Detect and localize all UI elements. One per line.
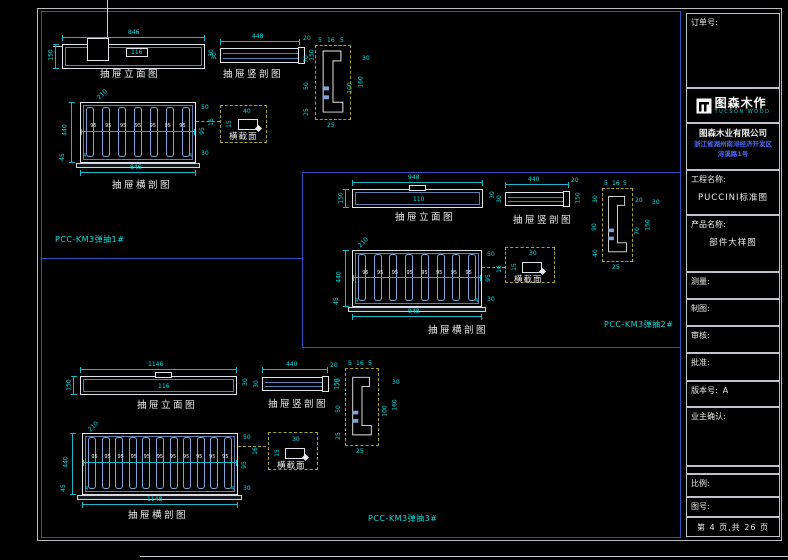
cell-dim-text: 95 (105, 124, 111, 129)
cell-dim-text: 95 (157, 455, 163, 460)
dim-vsec-width: 440 (286, 362, 297, 368)
dim-hsec-r3: 30 (487, 297, 495, 303)
dim-prof-side: 30 (652, 200, 660, 206)
cell-dim-text: 95 (131, 455, 137, 460)
mid-dim-line (81, 131, 195, 132)
detail-leader-dash (482, 267, 505, 268)
audit-label: 审核: (687, 327, 779, 341)
dim-wall: 4 (231, 487, 234, 492)
dim-line-width (352, 182, 483, 183)
dim-hsec-r3: 30 (201, 151, 209, 157)
elevation-label: 抽屉立面图 (137, 401, 197, 411)
dim-hsec-r1: 50 (201, 105, 209, 111)
divider-slot (197, 437, 205, 489)
dim-vsec-width: 440 (528, 177, 539, 183)
cell-dim-text: 95 (150, 124, 156, 129)
dim-line-bottom (82, 504, 238, 505)
profile-section-shape (349, 372, 375, 442)
figure-number-label: 图号: (687, 498, 779, 512)
dim-prof-bottom: 25 (327, 123, 335, 129)
cell-dims-row: 9595959595959595 (358, 271, 476, 276)
dim-width: 846 (128, 30, 139, 36)
dim-depth: 440 (61, 459, 72, 465)
company-cell: 图森木业有限公司 浙江省湖州南浔经济开发区 浔溪路1号 (686, 123, 780, 170)
logo-subtitle: TUCSON WOOD (715, 110, 771, 115)
product-cell: 产品名称: 部件大样图 (686, 215, 780, 272)
vsection-line (508, 197, 566, 198)
dim-prof-r3: 160 (390, 402, 401, 408)
divider-slots (86, 107, 190, 157)
dim-prof-l2: 50 (303, 83, 311, 89)
dim-inner-width: 116 (158, 384, 169, 390)
vsection-line (223, 53, 302, 54)
vsection-label: 抽屉竖剖图 (268, 400, 328, 410)
divider-slot (134, 107, 142, 157)
cell-dim-text: 95 (144, 455, 150, 460)
detail-leader-dash (238, 446, 266, 447)
dim-cross-h: 15 (226, 121, 234, 127)
dim-prof-t2: 16 (612, 181, 620, 187)
dim-line-vsec (262, 369, 328, 370)
dim-inner-width: 110 (413, 197, 424, 203)
dim-cross-h: 15 (511, 264, 519, 270)
version-cell: 版本号: A (686, 381, 780, 407)
cell-dim-text: 95 (120, 124, 126, 129)
cell-dim-text: 95 (164, 124, 170, 129)
vsection-endcap (322, 376, 329, 392)
dim-prof-t2: 16 (356, 361, 364, 367)
dim-width: 1146 (148, 362, 163, 368)
cell-dim-text: 95 (91, 455, 97, 460)
dim-line-bottom (80, 172, 196, 173)
hsection-label: 抽屉横剖图 (428, 326, 488, 336)
elevation-label: 抽屉立面图 (100, 70, 160, 80)
dim-prof-l1: 70 (303, 56, 311, 62)
dim-vsec-width: 448 (252, 34, 263, 40)
divider-slot (129, 437, 137, 489)
divider-slot (118, 107, 126, 157)
divider-slot (183, 437, 191, 489)
elevation-label: 抽屉立面图 (395, 213, 455, 223)
divider-slot (142, 437, 150, 489)
dim-width: 948 (408, 175, 419, 181)
group-code-label: PCC-KM3弹抽2# (604, 321, 673, 329)
vsection-bar (262, 377, 328, 391)
dim-hsec-r2: 95 (199, 128, 207, 134)
cell-dim-text: 95 (170, 455, 176, 460)
dim-prof-t2: 16 (327, 38, 335, 44)
dim-hsec-width: 846 (130, 165, 141, 171)
version-value: A (723, 386, 728, 395)
dim-line-bottom (352, 316, 482, 317)
project-cell: 工程名称: PUCCINI标准图 (686, 170, 780, 215)
owner-confirm-cell: 业主确认: (686, 407, 780, 466)
cell-dim-text: 95 (196, 455, 202, 460)
cell-dim-text: 95 (436, 271, 442, 276)
profile-section-shape (605, 192, 630, 258)
cell-dims-row: 9595959595959595959595 (88, 455, 232, 460)
dim-wall: 4 (85, 487, 88, 492)
owner-confirm-label: 业主确认: (687, 408, 779, 422)
dim-wall: 4 (355, 299, 358, 304)
vsection-label: 抽屉竖剖图 (513, 216, 573, 226)
dim-cross-w: 30 (292, 437, 300, 443)
dim-diagonal: 210 (88, 424, 99, 430)
cell-dim-text: 95 (421, 271, 427, 276)
measure-label: 测量: (687, 273, 779, 287)
bottom-sheet-edge-line (140, 556, 788, 557)
dim-prof-l2: 50 (335, 406, 343, 412)
dim-vsec-left: 30 (253, 381, 261, 387)
version-label: 版本号: A (687, 382, 779, 396)
cell-dim-text: 95 (179, 124, 185, 129)
dim-prof-t1: 5 (348, 361, 352, 367)
cross-label: 横截面 (514, 276, 543, 285)
hsection-label: 抽屉横剖图 (128, 511, 188, 521)
dim-cross-h: 15 (274, 450, 282, 456)
divider-slot (166, 107, 174, 157)
measure-cell: 测量: (686, 272, 780, 299)
dim-vsec-capright: 150 (573, 195, 584, 201)
dim-prof-l3: 40 (592, 250, 600, 256)
dim-prof-bottom: 25 (612, 265, 620, 271)
cell-dim-text: 95 (465, 271, 471, 276)
push-latch-square (87, 38, 109, 61)
dim-cross-w: 40 (243, 109, 251, 115)
dim-prof-r2: 100 (380, 408, 391, 414)
divider-slot (182, 107, 190, 157)
cad-sheet: 116 846 150 30 抽屉立面图 448 20 150 30 抽屉竖剖图… (0, 0, 788, 560)
cell-dims-row: 95959595959595 (86, 124, 190, 129)
dim-height: 150 (336, 195, 347, 201)
vsection-line (508, 201, 566, 202)
handle-notch (409, 185, 426, 191)
dim-hsec-r2: 95 (241, 462, 249, 468)
scale-label: 比例: (687, 475, 779, 489)
divider-slot (102, 437, 110, 489)
dim-vsec-captop: 20 (303, 36, 311, 42)
project-label: 工程名称: (687, 171, 779, 185)
group-code-label: PCC-KM3弹抽1# (55, 236, 124, 244)
divider-slot (156, 437, 164, 489)
dim-prof-t3: 5 (623, 181, 627, 187)
figure-number-cell: 图号: (686, 497, 780, 517)
vsection-bar (505, 192, 569, 206)
handle-notch (155, 372, 172, 378)
dim-side: 30 (242, 379, 250, 385)
logo-cell: 图森木作 TUCSON WOOD (686, 88, 780, 123)
divider-slot (88, 437, 96, 489)
dim-prof-r3: 160 (356, 79, 367, 85)
company-name: 图森木业有限公司 (687, 124, 779, 139)
dim-line-vsec (220, 41, 300, 42)
product-value: 部件大样图 (687, 230, 779, 248)
hsection-label: 抽屉横剖图 (112, 181, 172, 191)
product-label: 产品名称: (687, 216, 779, 230)
cell-dim-text: 95 (135, 124, 141, 129)
dim-vsec-captop: 20 (571, 178, 579, 184)
vsection-line (265, 386, 325, 387)
detail-leader-dash (196, 121, 220, 122)
dim-lead: 16 (208, 119, 216, 125)
dim-depth: 440 (334, 274, 345, 280)
approve-label: 批准: (687, 354, 779, 368)
dim-prof-t3: 5 (368, 361, 372, 367)
dim-bottom-left: 45 (59, 154, 67, 160)
cross-label: 横截面 (229, 133, 258, 142)
dim-wall: 4 (189, 154, 192, 159)
dim-inner-width: 116 (131, 50, 142, 56)
cell-dim-text: 95 (377, 271, 383, 276)
tucson-wood-logo-icon (696, 98, 712, 114)
divider-slot (102, 107, 110, 157)
page-number-cell: 第 4 页,共 26 页 (686, 517, 780, 537)
cell-dim-text: 95 (406, 271, 412, 276)
dim-prof-l1: 70 (335, 379, 343, 385)
divider-slot (115, 437, 123, 489)
vsection-bar (220, 48, 305, 63)
mid-dim-line (353, 277, 481, 278)
cell-dim-text: 95 (222, 455, 228, 460)
dim-hsec-r1: 50 (487, 252, 495, 258)
dim-line-vsec (505, 184, 569, 185)
dim-vsec-left: 30 (496, 196, 504, 202)
dim-prof-l3: 25 (303, 109, 311, 115)
divider-slot (224, 437, 232, 489)
cell-dim-text: 95 (104, 455, 110, 460)
dim-prof-r1: 30 (392, 380, 400, 386)
dim-bottom-left: 45 (60, 485, 68, 491)
vsection-line (265, 382, 325, 383)
dim-prof-t1: 5 (604, 181, 608, 187)
approve-cell: 批准: (686, 353, 780, 381)
company-address-line1: 浙江省湖州南浔经济开发区 (687, 139, 779, 149)
mid-dim-line (83, 462, 237, 463)
cell-dim-text: 95 (209, 455, 215, 460)
dim-vsec-left: 30 (211, 53, 219, 59)
cell-dim-text: 95 (118, 455, 124, 460)
dim-wall: 4 (475, 299, 478, 304)
scale-cell: 比例: (686, 474, 780, 497)
draft-cell: 制图: (686, 299, 780, 326)
dim-hsec-r2: 95 (485, 275, 493, 281)
dim-height: 150 (64, 382, 75, 388)
dim-prof-r2: 70 (634, 228, 642, 234)
dim-depth: 440 (60, 127, 71, 133)
dim-diagonal: 210 (358, 240, 369, 246)
dim-bottom-left: 45 (333, 298, 341, 304)
profile-section-shape (319, 49, 347, 116)
divider-slots (88, 437, 232, 489)
dim-prof-r2: 100 (345, 85, 356, 91)
divider-slot (86, 107, 94, 157)
order-number-cell: 订单号: (686, 13, 780, 88)
cell-dim-text: 95 (451, 271, 457, 276)
draft-label: 制图: (687, 300, 779, 314)
dim-height: 150 (46, 52, 57, 58)
cell-dim-text: 95 (362, 271, 368, 276)
group-code-label: PCC-KM3弹抽3# (368, 515, 437, 523)
dim-diagonal: 210 (97, 92, 108, 98)
divider-slot (170, 437, 178, 489)
cell-dim-text: 95 (183, 455, 189, 460)
dim-vsec-captop: 20 (330, 363, 338, 369)
cell-dim-text: 95 (90, 124, 96, 129)
dim-hsec-r1: 50 (243, 435, 251, 441)
group1-divider-line (41, 258, 302, 259)
dim-lead: 16 (252, 448, 260, 454)
spacer-cell (686, 466, 780, 474)
vsection-line (223, 58, 302, 59)
dim-prof-r1: 30 (362, 56, 370, 62)
cell-dim-text: 95 (392, 271, 398, 276)
dim-cross-w: 30 (529, 251, 537, 257)
dim-line-width (80, 369, 237, 370)
audit-cell: 审核: (686, 326, 780, 353)
vsection-label: 抽屉竖剖图 (223, 70, 283, 80)
vsection-endcap (563, 191, 570, 207)
dim-prof-r3: 150 (643, 222, 654, 228)
dim-prof-t3: 5 (340, 38, 344, 44)
dim-prof-l2: 90 (591, 224, 599, 230)
dim-hsec-r3: 30 (243, 486, 251, 492)
dim-prof-l1: 30 (592, 196, 600, 202)
order-number-label: 订单号: (687, 14, 779, 28)
logo-name: 图森木作 (715, 97, 767, 109)
dim-prof-bottom: 25 (356, 449, 364, 455)
cross-label: 横截面 (277, 462, 306, 471)
company-address-line2: 浔溪路1号 (687, 149, 779, 159)
project-value: PUCCINI标准图 (687, 185, 779, 203)
dim-prof-t1: 5 (318, 38, 322, 44)
dim-wall: 4 (83, 154, 86, 159)
divider-slot (210, 437, 218, 489)
dim-prof-r1: 20 (635, 198, 643, 204)
dim-line-width (62, 37, 205, 38)
divider-slot (150, 107, 158, 157)
page-number-text: 第 4 页,共 26 页 (687, 518, 779, 533)
dim-hsec-width: 1148 (147, 497, 162, 503)
dim-hsec-width: 948 (408, 309, 419, 315)
dim-prof-l3: 25 (335, 433, 343, 439)
